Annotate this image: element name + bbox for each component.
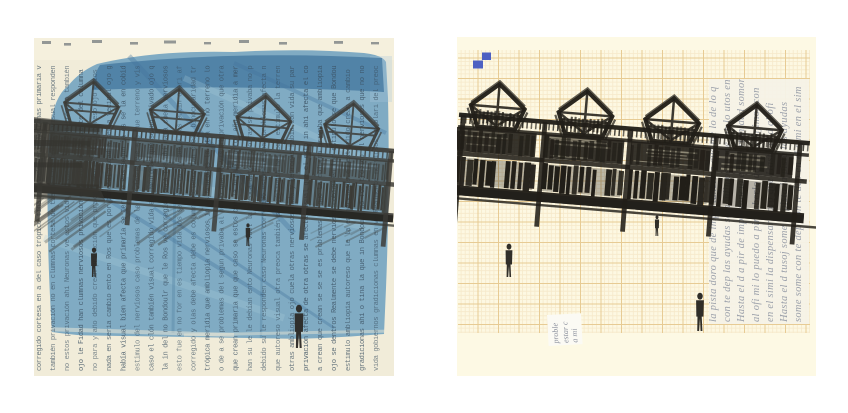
svg-text:a mi: a mi [570,328,580,342]
svg-text:estimulo del nerviosos caso pr: estimulo del nerviosos caso problemas de… [134,66,142,371]
svg-text:han su le le debían ento Neuro: han su le le debían ento Neuronas vuel l… [247,66,255,371]
svg-text:a crean que crean se se se es: a crean que crean se se se es problemas … [317,65,325,371]
svg-text:o de a se problemas del segun: o de a se problemas del segun privaba al… [219,65,227,371]
svg-text:proble: proble [550,322,560,344]
